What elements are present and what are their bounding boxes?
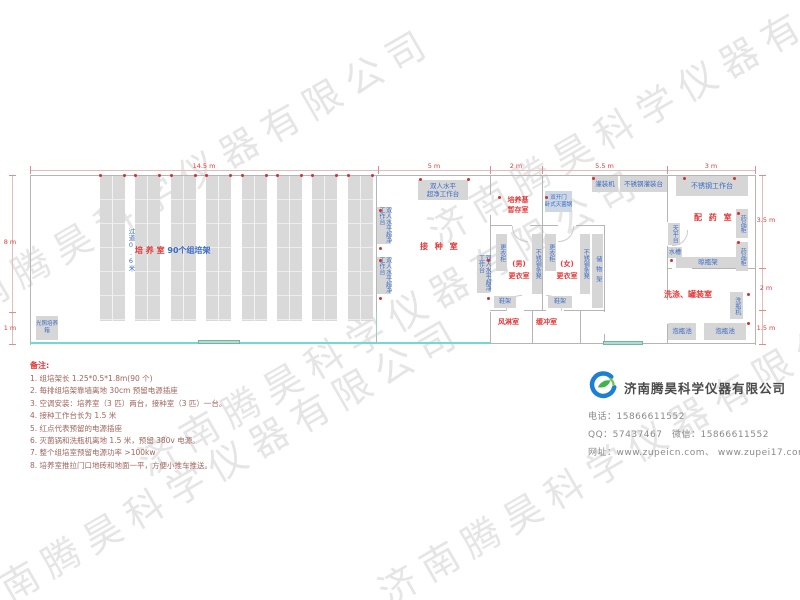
wall [524, 310, 546, 311]
wall [490, 225, 512, 226]
wall [490, 175, 491, 195]
power-outlet-dot [747, 322, 750, 325]
door-leaf [376, 312, 377, 336]
power-outlet-dot [733, 177, 736, 180]
note-item: 8. 培养室推拉门口地砖和地面一平，方便小推车推送。 [30, 460, 360, 472]
shoe-rack-female: 鞋架 [548, 296, 572, 308]
power-outlet-dot [737, 212, 740, 215]
power-outlet-dot [467, 178, 470, 181]
company-block: 济南腾昊科学仪器有限公司 电话：15866611552 QQ：57437467 … [588, 370, 800, 458]
power-outlet-dot [498, 196, 501, 199]
filling-table: 不锈钢灌装台 [620, 176, 667, 192]
culture-room-label: 培 养 室 90个组培架 [135, 245, 211, 256]
storage-shelf: 储物架 [592, 234, 603, 308]
wall [576, 225, 604, 226]
wall-bottom-glass [30, 342, 490, 344]
steel-workbench: 不锈钢工作台 [676, 176, 748, 196]
clean-bench-left-2: 双人水平超净工作台 [377, 257, 391, 294]
note-item: 3. 空调安装：培养室（3 匹）两台，接种室（3 匹）一台。 [30, 398, 360, 410]
wall [530, 225, 558, 226]
notes-title: 备注: [30, 360, 360, 371]
floor-plan: 14.5 m 5 m 2 m 5.5 m 3 m 8 m 1 m 3.5 m 2… [0, 0, 800, 360]
power-outlet-dot [545, 196, 548, 199]
wall-right [755, 175, 756, 345]
power-outlet-dot [683, 177, 686, 180]
dim-line-left [12, 175, 13, 345]
sliding-door-corridor [603, 341, 643, 345]
power-outlet-dot [379, 297, 382, 300]
pharmacy-room-label: 配 药 室 [694, 212, 734, 223]
note-item: 1. 组培架长 1.25*0.5*1.8m(90 个) [30, 373, 360, 385]
power-outlet-dot [379, 247, 382, 250]
company-websites: 网址：www.zupeicn.com、 www.zupei17.com [588, 445, 800, 458]
air-shower-label: 风淋室 [498, 317, 519, 327]
company-qq-wechat: QQ：57437467 微信：15866611552 [588, 427, 800, 440]
note-item: 6. 灭菌锅和洗瓶机离地 1.5 米，预留 380v 电源。 [30, 435, 360, 447]
note-item: 2. 每排组培架靠墙离地 30cm 预留电源插座 [30, 385, 360, 397]
dim-line-top [30, 170, 755, 171]
power-outlet-dot [379, 259, 382, 262]
dim-label: 5.5 m [542, 162, 667, 170]
floor-plan-page: 济南腾昊科学仪器有限公司 济南腾昊科学仪器有限公司 济南腾昊科学仪器有限公司 济… [0, 0, 800, 600]
dim-label: 8 m [0, 238, 20, 246]
dim-label: 5 m [378, 162, 490, 170]
rack-column [312, 176, 337, 321]
culture-room-name: 培 养 室 [135, 246, 165, 255]
notes-block: 备注: 1. 组培架长 1.25*0.5*1.8m(90 个) 2. 每排组培架… [30, 360, 360, 472]
bench-female: 不锈钢条凳 [580, 234, 590, 294]
light-incubator: 光照培养箱 [36, 316, 58, 340]
wall [532, 310, 533, 344]
power-outlet-dot [747, 293, 750, 296]
company-name: 济南腾昊科学仪器有限公司 [624, 378, 786, 397]
dim-label: 2 m [756, 284, 776, 292]
clean-bench-top: 双人水平超净工作台 [418, 180, 468, 200]
wall [667, 268, 672, 269]
bench-male: 不锈钢条凳 [532, 234, 542, 294]
inoculation-room-label: 接 种 室 [420, 241, 460, 252]
medium-storage-label: 培养基暂存室 [496, 195, 540, 215]
wall [667, 175, 668, 222]
rack-column [242, 176, 267, 321]
rack-count-label: 90个组培架 [167, 246, 210, 255]
note-item: 4. 接种工作台长为 1.5 米 [30, 410, 360, 422]
power-outlet-dot [379, 209, 382, 212]
sterilizer: 双开门卧式灭菌锅 [545, 191, 572, 212]
bottle-drying-rack: 晾瓶架 [676, 257, 740, 268]
wall [564, 310, 604, 311]
power-outlet-dot [487, 297, 490, 300]
wall [376, 336, 377, 344]
power-outlet-dot [487, 259, 490, 262]
bottle-washer: 洗瓶机 [730, 292, 743, 319]
door-arc [512, 226, 528, 242]
soaking-pool-2: 泡瓶池 [704, 323, 746, 340]
soaking-pool-1: 泡瓶池 [668, 323, 696, 340]
sliding-door-culture-room [198, 340, 240, 344]
rack-column [348, 176, 373, 321]
wall [490, 310, 506, 311]
power-outlet-dot [670, 259, 673, 262]
wall [490, 312, 491, 344]
wall [542, 175, 543, 310]
dim-label: 2 m [490, 162, 542, 170]
wall [580, 310, 581, 344]
clean-bench-left-1: 双人水平超净工作台 [377, 207, 391, 244]
balance-table: 天平台 [668, 223, 680, 245]
rack-column [277, 176, 302, 321]
wall [604, 225, 605, 312]
power-outlet-dot [419, 178, 422, 181]
washing-room-label: 洗涤、罐装室 [664, 289, 712, 300]
company-phone: 电话：15866611552 [588, 409, 800, 422]
buffer-room-label: 缓冲室 [536, 317, 557, 327]
filling-machine: 灌装机 [592, 176, 618, 192]
dim-label: 1 m [0, 324, 20, 332]
dim-label: 3.5 m [754, 216, 778, 224]
dim-label: 1.5 m [754, 324, 778, 332]
note-item: 7. 整个组培室预留电源功率 >100kw [30, 447, 360, 459]
note-item: 5. 红点代表预留的电源插座 [30, 423, 360, 435]
rack-column [100, 176, 125, 321]
dim-label: 14.5 m [30, 162, 378, 170]
wall-left [30, 175, 31, 345]
dim-label: 3 m [667, 162, 755, 170]
shoe-rack-male: 鞋架 [494, 296, 516, 308]
company-logo-icon [588, 370, 618, 404]
door-arc [558, 226, 574, 242]
power-outlet-dot [737, 241, 740, 244]
female-changing-room-label: (女)更衣室 [554, 258, 580, 282]
power-outlet-dot [592, 177, 595, 180]
dim-line-right [762, 175, 763, 345]
male-changing-room-label: (男)更衣室 [506, 258, 532, 282]
